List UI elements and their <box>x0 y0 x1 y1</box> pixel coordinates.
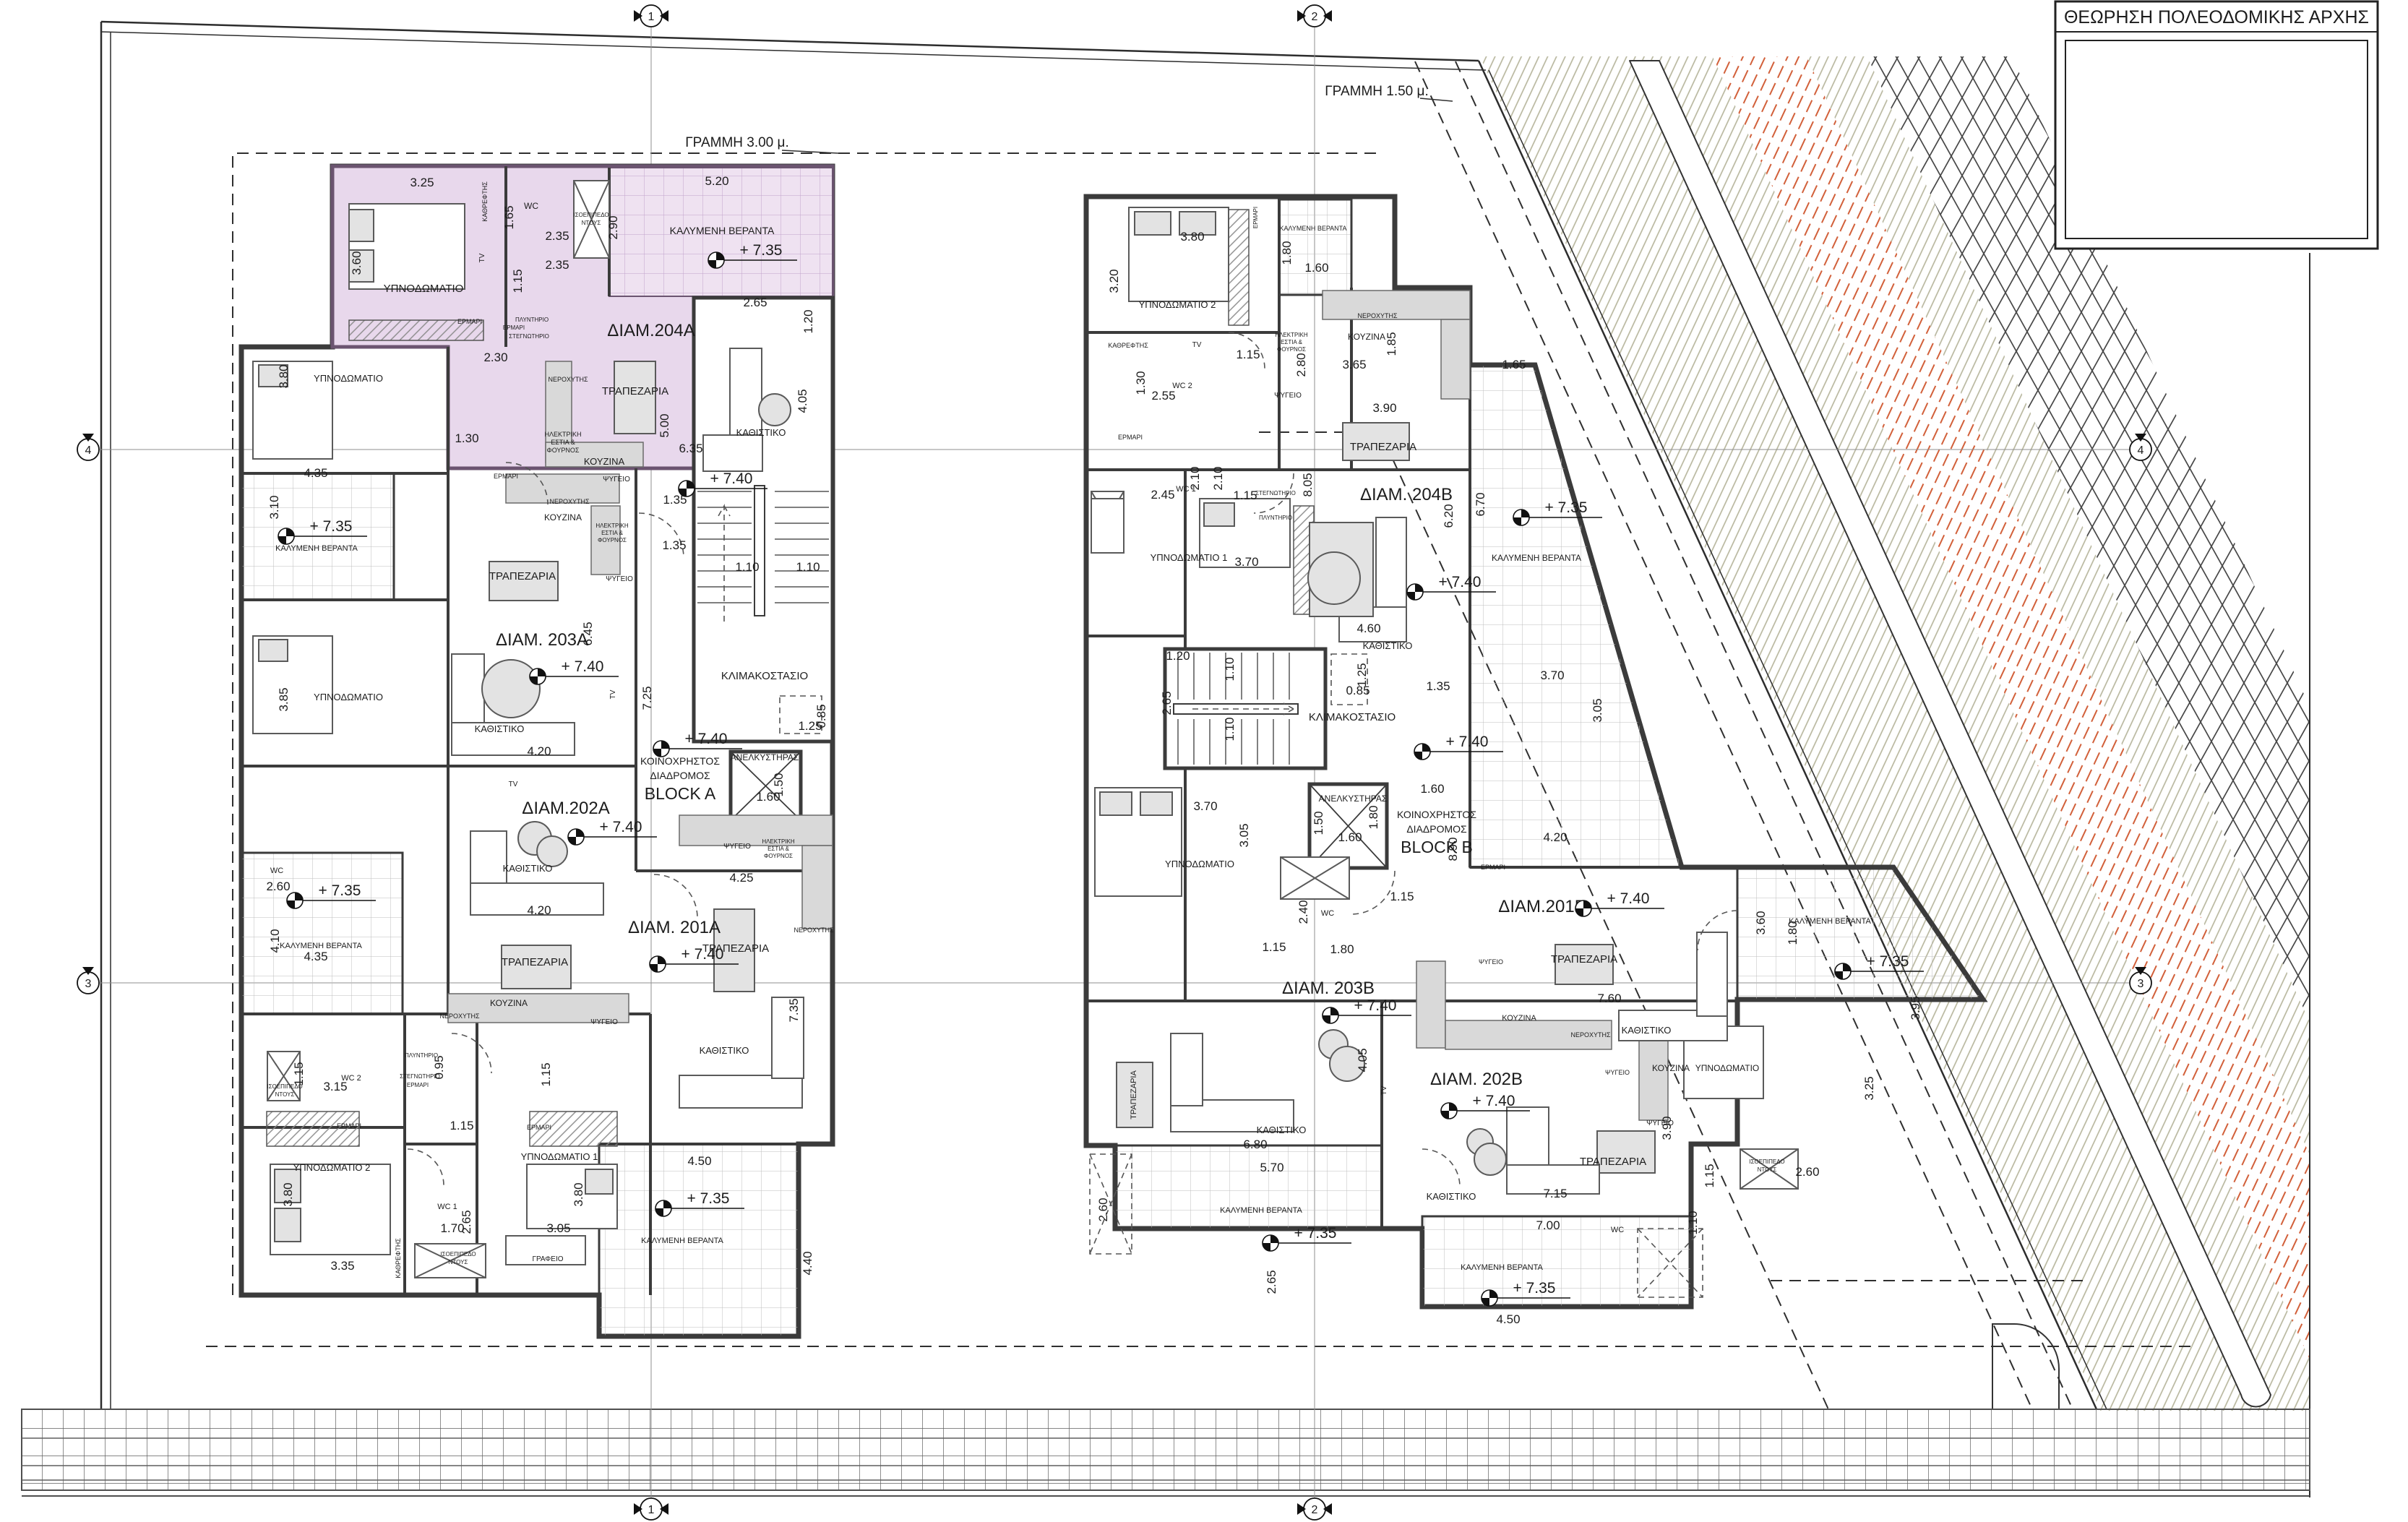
dimension-label: 8.05 <box>1301 473 1315 496</box>
dimension-label: 3.70 <box>1540 668 1564 682</box>
room-label: ΝΤΟΥΣ <box>1758 1166 1777 1173</box>
dimension-label: 2.65 <box>460 1210 473 1234</box>
grid-bubble-number: 1 <box>648 1504 655 1516</box>
dimension-label: 3.25 <box>1862 1076 1876 1100</box>
room-label: ΚΑΛΥΜΕΝΗ ΒΕΡΑΝΤΑ <box>670 225 775 236</box>
dimension-label: 3.05 <box>1237 823 1251 847</box>
level-value: + 7.40 <box>1354 997 1397 1014</box>
room-label: ΗΛΕΚΤΡΙΚΗ <box>595 523 629 529</box>
dimension-label: 1.50 <box>772 773 786 796</box>
room-label: ΨΥΓΕΙΟ <box>723 843 751 851</box>
level-value: + 7.40 <box>600 819 642 835</box>
dimension-label: 7.35 <box>787 998 801 1022</box>
room-label: ΗΛΕΚΤΡΙΚΗ <box>762 838 795 845</box>
level-value: + 7.35 <box>1545 499 1588 516</box>
room-label: ΕΡΜΑΡΙ <box>1118 434 1143 441</box>
room-label: ΝΕΡΟΧΥΤΗΣ <box>548 376 588 383</box>
apartment-label: ΔΙΑΜ.201Β <box>1498 897 1586 916</box>
dimension-label: 7.15 <box>1543 1187 1567 1200</box>
setback-line-label: ΓΡΑΜΜΗ 3.00 μ. <box>685 135 789 150</box>
dimension-label: 1.65 <box>1502 358 1526 371</box>
level-value: + 7.35 <box>1294 1225 1337 1242</box>
dimension-label: 2.45 <box>1151 488 1174 502</box>
corridor-label: ΚΟΙΝΟΧΡΗΣΤΟΣ <box>1397 809 1476 820</box>
room-label: ΥΠΝΟΔΩΜΑΤΙΟ <box>1165 859 1234 869</box>
room-label: ΕΡΜΑΡΙ <box>1481 864 1505 871</box>
room-label: ΚΑΛΥΜΕΝΗ ΒΕΡΑΝΤΑ <box>1492 553 1581 563</box>
room-label: ΚΑΘΙΣΤΙΚΟ <box>700 1045 749 1056</box>
dimension-label: 1.20 <box>801 309 815 333</box>
dimension-label: 3.70 <box>1193 799 1217 813</box>
room-label: ΗΛΕΚΤΡΙΚΗ <box>544 431 581 438</box>
dimension-label: 1.10 <box>796 560 820 574</box>
level-marker-icon <box>1583 900 1591 908</box>
room-label: WC 1 <box>437 1203 457 1211</box>
level-value: + 7.35 <box>740 242 783 259</box>
room-label: ΥΠΝΟΔΩΜΑΤΙΟ <box>384 283 464 295</box>
room-label: ΤΡΑΠΕΖΑΡΙΑ <box>1551 953 1617 966</box>
stair-core-b <box>1165 649 1367 768</box>
room-label: ΚΛΙΜΑΚΟΣΤΑΣΙΟ <box>1309 711 1396 723</box>
room-label: TV <box>609 689 617 699</box>
room-label: ΚΑΘΙΣΤΙΚΟ <box>1363 640 1413 651</box>
dimension-label: 0.85 <box>1346 684 1369 697</box>
level-value: + 7.40 <box>1439 574 1482 590</box>
room-label: ΦΟΥΡΝΟΣ <box>1277 346 1306 353</box>
floor-plan-page: ΥΠΝΟΔΩΜΑΤΙΟWCΙΣΟΕΠΙΠΕΔΟΝΤΟΥΣΚΑΘΡΕΦΤΗΣTVΕ… <box>0 0 2408 1522</box>
dimension-label: 4.40 <box>801 1251 814 1275</box>
room-label: TV <box>478 253 486 262</box>
level-marker-icon <box>538 668 546 676</box>
corridor-label: ΔΙΑΔΡΟΜΟΣ <box>650 770 710 781</box>
dimension-label: 1.15 <box>511 269 525 293</box>
dimension-label: 3.70 <box>1234 555 1258 569</box>
dimension-label: 2.65 <box>743 296 767 309</box>
dimension-label: 1.15 <box>1390 890 1414 903</box>
dimension-label: 7.00 <box>1536 1218 1560 1232</box>
room-label: ΤΡΑΠΕΖΑΡΙΑ <box>1350 441 1416 453</box>
room-label: ΚΟΥΖΙΝΑ <box>1348 332 1385 342</box>
room-label: ΚΟΥΖΙΝΑ <box>1502 1014 1536 1023</box>
level-marker-icon <box>661 741 669 749</box>
veranda-202a <box>241 853 403 1014</box>
level-marker-icon <box>1415 584 1423 592</box>
room-label: ΕΡΜΑΡΙ <box>457 318 482 325</box>
pavement <box>22 1409 2310 1496</box>
grid-bubble-number: 2 <box>1312 1504 1318 1516</box>
veranda-203b <box>1115 1145 1382 1229</box>
dimension-label: 6.80 <box>1243 1138 1267 1151</box>
dimension-label: 5.20 <box>705 174 728 188</box>
veranda-204b <box>1470 365 1682 867</box>
room-label: ΥΠΝΟΔΩΜΑΤΙΟ 1 <box>521 1151 598 1162</box>
dimension-label: 2.60 <box>1795 1165 1819 1179</box>
level-value: + 7.40 <box>685 731 728 747</box>
level-value: + 7.35 <box>310 518 353 535</box>
room-label: ΠΛΥΝΤΗΡΙΟ <box>515 317 549 323</box>
level-marker-icon <box>1441 1111 1449 1119</box>
room-label: ΕΡΜΑΡΙ <box>337 1122 361 1130</box>
dimension-label: 3.60 <box>1754 911 1768 934</box>
dimension-label: 1.60 <box>1338 830 1362 844</box>
room-label: ΚΑΛΥΜΕΝΗ ΒΕΡΑΝΤΑ <box>1279 225 1346 232</box>
dimension-label: 4.50 <box>687 1154 711 1168</box>
room-label: TV <box>509 781 518 788</box>
dimension-label: 1.20 <box>1166 649 1190 663</box>
dimension-label: 1.10 <box>1223 657 1237 681</box>
dimension-label: 1.35 <box>1426 679 1450 693</box>
room-label: ΦΟΥΡΝΟΣ <box>547 447 580 454</box>
corridor-label: ΔΙΑΔΡΟΜΟΣ <box>1406 823 1467 835</box>
dimension-label: 1.60 <box>1420 782 1444 796</box>
room-label: ΚΑΘΙΣΤΙΚΟ <box>736 427 786 438</box>
grid-bubble-number: 2 <box>1312 11 1318 23</box>
level-value: + 7.35 <box>687 1190 730 1207</box>
room-label: ΙΣΟΕΠΙΠΕΔΟ <box>573 212 609 218</box>
dimension-label: 1.15 <box>292 1062 306 1085</box>
dimension-label: 1.80 <box>1330 942 1354 956</box>
dimension-label: 3.85 <box>277 687 291 711</box>
dimension-label: 1.15 <box>1703 1164 1716 1187</box>
dimension-label: 5.70 <box>1260 1161 1283 1174</box>
room-label: ΕΣΤΙΑ & <box>601 530 624 536</box>
room-label: ΚΑΘΙΣΤΙΚΟ <box>1622 1025 1672 1036</box>
room-label: ΚΑΘΡΕΦΤΗΣ <box>395 1238 402 1278</box>
room-label: ΗΛΕΚΤΡΙΚΗ <box>1275 332 1308 338</box>
dimension-label: 1.15 <box>1236 348 1260 361</box>
dimension-label: 1.15 <box>539 1062 553 1086</box>
room-label: ΝΤΟΥΣ <box>449 1259 468 1265</box>
level-value: + 7.35 <box>1513 1280 1556 1297</box>
room-label: ΥΠΝΟΔΩΜΑΤΙΟ 2 <box>293 1162 371 1173</box>
room-label: ΙΣΟΕΠΙΠΕΔΟ <box>1749 1158 1784 1165</box>
dimension-label: 4.05 <box>1356 1048 1369 1072</box>
level-value: + 7.40 <box>1607 890 1650 907</box>
stamp-area <box>2065 40 2368 238</box>
room-label: ΚΑΛΥΜΕΝΗ ΒΕΡΑΝΤΑ <box>1220 1206 1302 1215</box>
room-label: ΕΡΜΑΡΙ <box>407 1082 429 1088</box>
room-label: ΤΡΑΠΕΖΑΡΙΑ <box>1580 1156 1646 1168</box>
dimension-label: 0.95 <box>432 1055 446 1079</box>
room-label: ΝΤΟΥΣ <box>582 220 601 226</box>
floor-plan-drawing: ΥΠΝΟΔΩΜΑΤΙΟWCΙΣΟΕΠΙΠΕΔΟΝΤΟΥΣΚΑΘΡΕΦΤΗΣTVΕ… <box>0 0 2408 1522</box>
dimension-label: 3.35 <box>330 1259 354 1273</box>
room-label: ΚΑΛΥΜΕΝΗ ΒΕΡΑΝΤΑ <box>1461 1263 1543 1272</box>
room-label: ΝΤΟΥΣ <box>275 1091 295 1098</box>
room-label: ΚΑΘΡΕΦΤΗΣ <box>1108 342 1148 349</box>
apartment-label: ΔΙΑΜ. 202Β <box>1430 1070 1523 1089</box>
room-label: ΚΑΛΥΜΕΝΗ ΒΕΡΑΝΤΑ <box>275 544 358 553</box>
level-value: + 7.35 <box>1867 953 1909 970</box>
dimension-label: 3.60 <box>350 251 364 275</box>
level-marker-icon <box>1270 1235 1278 1243</box>
title-block: ΘΕΩΡΗΣΗ ΠΟΛΕΟΔΟΜΙΚΗΣ ΑΡΧΗΣ <box>2055 1 2378 249</box>
dimension-label: 1.10 <box>1223 717 1237 741</box>
dimension-label: 2.30 <box>483 351 507 364</box>
room-label: ΤΡΑΠΕΖΑΡΙΑ <box>502 956 568 968</box>
dimension-label: 1.65 <box>502 205 516 229</box>
dimension-label: 2.10 <box>1188 466 1202 490</box>
dimension-label: 4.20 <box>1543 830 1567 844</box>
dimension-label: 2.55 <box>1151 389 1175 403</box>
dimension-label: 1.15 <box>450 1119 473 1132</box>
level-value: + 7.40 <box>1473 1093 1515 1109</box>
dimension-label: 3.05 <box>1591 698 1604 722</box>
room-label: WC <box>524 201 538 211</box>
room-label: WC <box>270 867 283 875</box>
dimension-label: 4.05 <box>796 389 809 413</box>
level-marker-icon <box>1449 1103 1457 1111</box>
room-label: ΥΠΝΟΔΩΜΑΤΙΟ <box>314 692 383 702</box>
dimension-label: 3.95 <box>1909 996 1922 1020</box>
room-label: WC <box>1321 909 1334 918</box>
room-label: ΨΥΓΕΙΟ <box>606 575 633 583</box>
dimension-label: 7.25 <box>640 686 654 710</box>
room-label: ΤΡΑΠΕΖΑΡΙΑ <box>489 570 556 582</box>
dimension-label: 1.30 <box>455 431 478 445</box>
dimension-label: 3.20 <box>1107 269 1121 293</box>
dimension-label: 1.50 <box>1312 811 1325 835</box>
room-label: ΕΡΜΑΡΙ <box>527 1124 551 1131</box>
dimension-label: 3.90 <box>1660 1116 1674 1140</box>
room-label: ΕΡΜΑΡΙ <box>494 473 518 480</box>
dimension-label: 2.60 <box>1096 1198 1110 1221</box>
room-label: ΚΑΘΙΣΤΙΚΟ <box>1427 1191 1476 1202</box>
dimension-label: 2.65 <box>1160 691 1174 715</box>
level-marker-icon <box>658 956 666 964</box>
room-label: WC <box>1611 1226 1624 1234</box>
level-value: + 7.35 <box>319 882 361 899</box>
apartment-label: ΔΙΑΜ. 203Α <box>496 630 588 650</box>
dimension-label: 6.20 <box>1442 504 1455 528</box>
level-marker-icon <box>576 829 584 837</box>
level-marker-icon <box>1323 1015 1330 1023</box>
room-label: ΚΑΘΙΣΤΙΚΟ <box>1257 1125 1307 1135</box>
room-label: ΕΣΤΙΑ & <box>1281 339 1303 345</box>
room-label: ΑΝΕΛΚΥΣΤΗΡΑΣ <box>731 752 799 762</box>
dimension-label: 1.15 <box>1233 489 1257 502</box>
dimension-label: 2.80 <box>1294 353 1308 377</box>
dimension-label: 2.35 <box>545 258 569 272</box>
dimension-label: 1.80 <box>1786 921 1799 945</box>
grid-bubble-number: 4 <box>2138 444 2144 457</box>
room-label: ΤΡΑΠΕΖΑΡΙΑ <box>1130 1070 1138 1119</box>
dimension-label: 6.70 <box>1474 492 1487 516</box>
dimension-label: 3.05 <box>546 1221 570 1235</box>
dimension-label: 4.10 <box>268 929 282 953</box>
room-label: ΥΠΝΟΔΩΜΑΤΙΟ 1 <box>1151 552 1228 563</box>
level-marker-icon <box>1422 744 1430 752</box>
dimension-label: 1.80 <box>1367 805 1380 829</box>
room-label: ΚΑΛΥΜΕΝΗ ΒΕΡΑΝΤΑ <box>1789 917 1871 926</box>
dimension-label: 0.85 <box>814 704 828 728</box>
block-name-label: BLOCK A <box>645 784 716 803</box>
room-label: ΦΟΥΡΝΟΣ <box>764 853 793 859</box>
level-value: + 7.40 <box>1446 734 1489 750</box>
dimension-label: 4.50 <box>1496 1312 1520 1326</box>
room-label: ΓΡΑΦΕΙΟ <box>532 1255 563 1263</box>
room-label: ΕΣΤΙΑ & <box>551 439 575 446</box>
grid-bubble-number: 3 <box>2138 978 2144 990</box>
room-label: ΚΑΘΙΣΤΙΚΟ <box>475 723 525 734</box>
grid-bubble-number: 1 <box>648 11 655 23</box>
room-label: ΚΟΥΖΙΝΑ <box>1652 1063 1690 1073</box>
room-label: ΥΠΝΟΔΩΜΑΤΙΟ <box>314 373 383 384</box>
room-label: ΙΣΟΕΠΙΠΕΔΟ <box>440 1251 476 1257</box>
apartment-label: ΔΙΑΜ.204Α <box>607 321 695 340</box>
dimension-label: 3.25 <box>410 176 434 189</box>
level-marker-icon <box>568 837 576 845</box>
room-label: ΨΥΓΕΙΟ <box>1274 392 1302 400</box>
level-marker-icon <box>1407 592 1415 600</box>
dimension-label: 1.35 <box>662 538 686 552</box>
corridor-label: ΚΟΙΝΟΧΡΗΣΤΟΣ <box>640 755 720 767</box>
room-label: ΨΥΓΕΙΟ <box>603 476 630 483</box>
dimension-label: 4.20 <box>527 903 551 917</box>
dimension-label: 7.60 <box>1597 992 1621 1005</box>
room-label: ΕΣΤΙΑ & <box>767 846 790 852</box>
room-label: ΕΡΜΑΡΙ <box>503 324 525 331</box>
level-value: + 7.40 <box>710 470 753 487</box>
dimension-label: 2.35 <box>545 229 569 243</box>
dimension-label: 3.80 <box>572 1182 585 1206</box>
dimension-label: 1.60 <box>1304 261 1328 275</box>
dimension-label: 1.15 <box>1262 940 1286 954</box>
apartment-label: ΔΙΑΜ. 201Α <box>628 918 721 937</box>
room-label: ΨΥΓΕΙΟ <box>1479 958 1503 966</box>
dimension-label: 2.40 <box>1297 900 1310 924</box>
room-label: TV <box>1380 1085 1388 1095</box>
level-marker-icon <box>1414 752 1422 760</box>
dimension-label: 3.80 <box>281 1182 295 1206</box>
dimension-label: 4.60 <box>1356 622 1380 635</box>
apartment-label: ΔΙΑΜ. 203Β <box>1282 979 1375 998</box>
room-label: ΚΑΘΙΣΤΙΚΟ <box>503 863 553 874</box>
room-label: ΕΡΜΑΡΙ <box>1252 207 1259 228</box>
dimension-label: 1.10 <box>735 560 759 574</box>
dimension-label: 3.15 <box>323 1080 347 1093</box>
dimension-label: 3.80 <box>1180 230 1204 244</box>
level-marker-icon <box>1263 1243 1270 1251</box>
stamp-title: ΘΕΩΡΗΣΗ ΠΟΛΕΟΔΟΜΙΚΗΣ ΑΡΧΗΣ <box>2064 7 2369 27</box>
setback-line-label: ΓΡΑΜΜΗ 1.50 μ. <box>1325 84 1429 99</box>
room-label: ΝΕΡΟΧΥΤΗΣ <box>1357 312 1398 319</box>
room-label: TV <box>1192 341 1202 349</box>
dimension-label: 2.10 <box>1211 466 1225 490</box>
dimension-label: 6.35 <box>679 442 702 455</box>
room-label: ΚΟΥΖΙΝΑ <box>490 998 528 1008</box>
room-label: ΚΟΥΖΙΝΑ <box>544 512 582 523</box>
room-label: ΦΟΥΡΝΟΣ <box>598 537 627 543</box>
dimension-label: 4.25 <box>729 871 753 885</box>
apartment-label: ΔΙΑΜ. 204Β <box>1360 485 1453 504</box>
room-label: ΝΕΡΟΧΥΤΗΣ <box>1570 1031 1611 1039</box>
room-label: ΝΕΡΟΧΥΤΗΣ <box>439 1012 480 1020</box>
room-label: ΝΕΡΟΧΥΤΗΣ <box>794 926 834 934</box>
dimension-label: 1.80 <box>1280 241 1294 265</box>
room-label: ΠΛΥΝΤΗΡΙΟ <box>1259 515 1292 521</box>
level-value: + 7.40 <box>681 946 724 963</box>
room-label: ΚΛΙΜΑΚΟΣΤΑΣΙΟ <box>721 670 808 682</box>
room-label: ΥΠΝΟΔΩΜΑΤΙΟ 2 <box>1139 299 1216 310</box>
apartment-label: ΔΙΑΜ.202Α <box>522 799 609 818</box>
room-label: ΚΑΘΡΕΦΤΗΣ <box>481 181 489 222</box>
room-label: ΚΑΛΥΜΕΝΗ ΒΕΡΑΝΤΑ <box>641 1237 723 1245</box>
dimension-label: 1.30 <box>1134 371 1148 395</box>
dimension-label: 1.10 <box>1686 1211 1700 1234</box>
dimension-label: 3.10 <box>267 495 281 519</box>
level-value: + 7.40 <box>562 658 604 675</box>
room-label: ΥΠΝΟΔΩΜΑΤΙΟ <box>1695 1063 1760 1073</box>
dimension-label: 2.90 <box>606 215 620 239</box>
level-marker-icon <box>1330 1007 1338 1015</box>
dimension-label: 3.65 <box>1342 358 1366 371</box>
dimension-label: 3.90 <box>1372 401 1396 415</box>
dimension-label: 4.35 <box>304 466 327 480</box>
room-label: ΚΟΥΖΙΝΑ <box>584 456 625 467</box>
dimension-label: 1.85 <box>1385 332 1398 356</box>
dimension-label: 2.65 <box>1265 1270 1278 1294</box>
room-label: ΣΤΕΓΝΩΤΗΡΙΟ <box>509 333 549 340</box>
block-name-label: BLOCK B <box>1401 838 1473 856</box>
dimension-label: 5.00 <box>658 413 671 437</box>
room-label: ΨΥΓΕΙΟ <box>590 1018 618 1026</box>
dimension-label: 4.20 <box>527 744 551 758</box>
room-label: ΝΕΡΟΧΥΤΗΣ <box>549 498 590 505</box>
dimension-label: 4.35 <box>304 950 327 963</box>
room-label: ΣΤΕΓΝΩΤΗΡΙΟ <box>1255 490 1296 496</box>
dimension-label: 3.80 <box>277 364 291 388</box>
grid-bubble-number: 4 <box>85 444 92 457</box>
room-label: ΨΥΓΕΙΟ <box>1605 1069 1630 1076</box>
room-label: ΤΡΑΠΕΖΑΡΙΑ <box>602 385 668 397</box>
grid-bubble-number: 3 <box>85 978 92 990</box>
dimension-label: 2.60 <box>266 880 290 893</box>
room-label: ΑΝΕΛΚΥΣΤΗΡΑΣ <box>1319 794 1388 804</box>
